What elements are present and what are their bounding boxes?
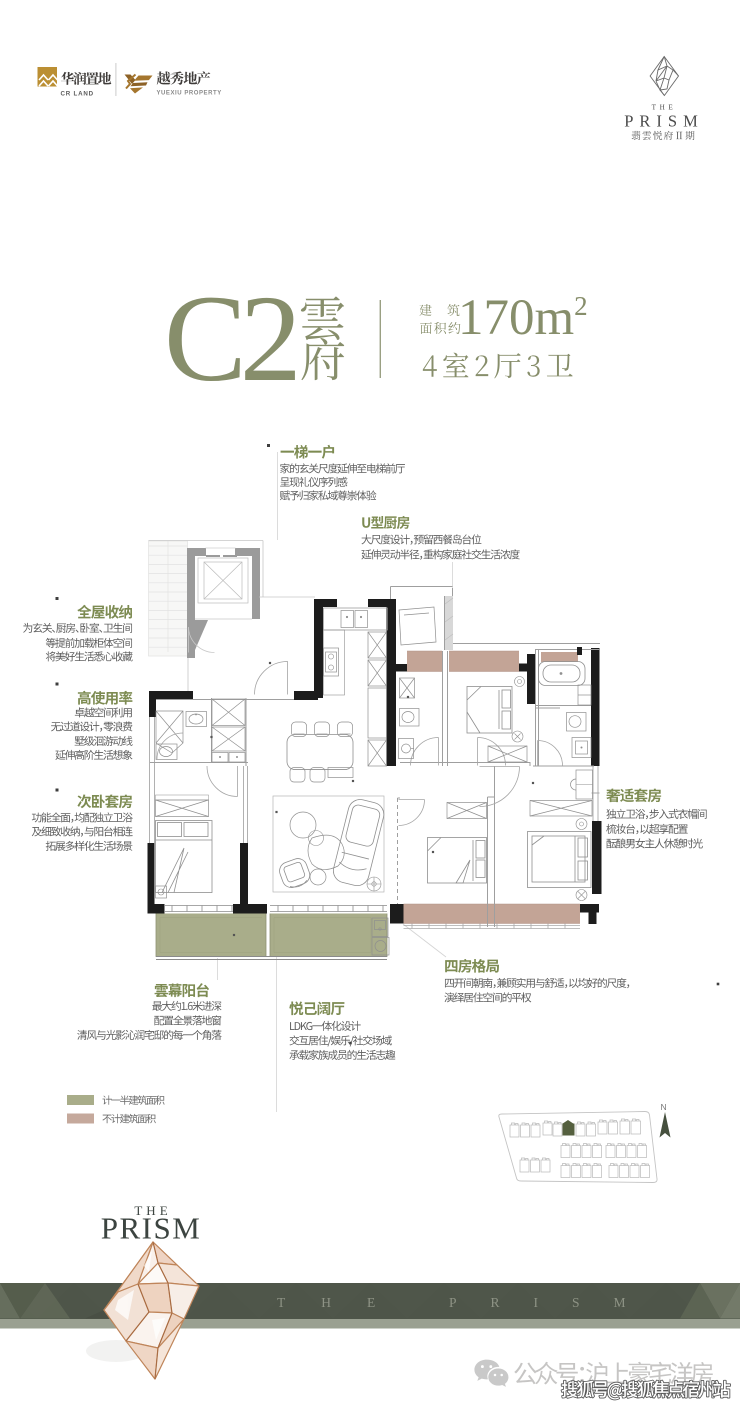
svg-text:N: N	[661, 1102, 667, 1112]
svg-text:PRISM: PRISM	[101, 1211, 202, 1246]
svg-text:YUEXIU PROPERTY: YUEXIU PROPERTY	[157, 91, 222, 97]
svg-text:THE: THE	[277, 1295, 411, 1310]
svg-text:PRISM: PRISM	[449, 1295, 660, 1310]
svg-text:CR LAND: CR LAND	[61, 91, 94, 98]
svg-text:170m2: 170m2	[458, 290, 588, 346]
svg-text:PRISM: PRISM	[624, 112, 704, 131]
svg-text:THE: THE	[652, 104, 677, 112]
svg-text:C2: C2	[164, 270, 296, 407]
